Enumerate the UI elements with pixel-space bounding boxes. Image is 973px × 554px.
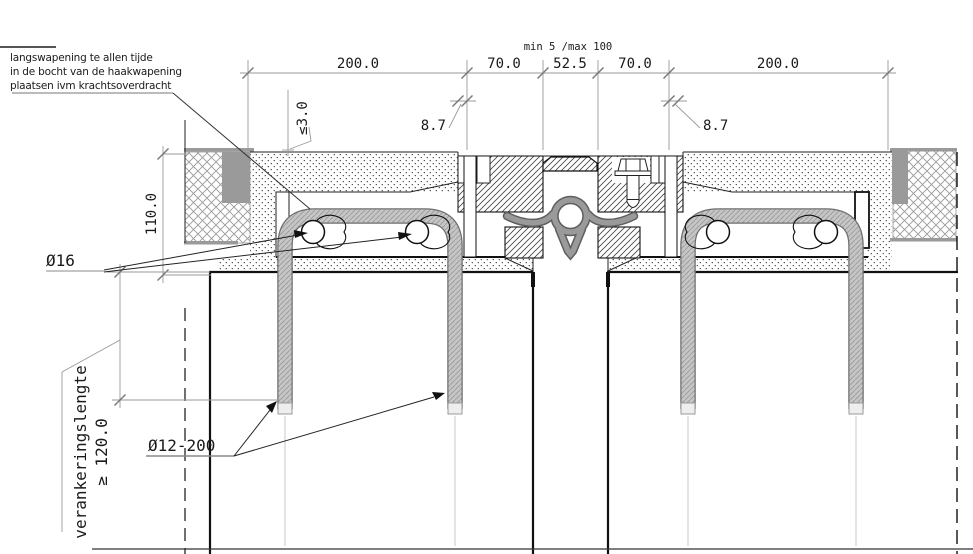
note-line-2: in de bocht van de haakwapening — [10, 66, 182, 78]
bar-o16-3 — [707, 221, 730, 244]
gap-range-label: min 5 /max 100 — [524, 41, 613, 53]
dim-8-7-right: 8.7 — [703, 118, 728, 134]
note-line-1: langswapening te allen tijde — [10, 52, 153, 64]
label-o12-200: Ø12-200 — [148, 436, 215, 455]
bar-o16-2 — [406, 221, 429, 244]
dim-110: 110.0 — [144, 193, 160, 235]
hook-rebar-right — [681, 216, 863, 414]
dim-200-right: 200.0 — [757, 56, 799, 72]
anchor-plate-left — [464, 156, 476, 257]
dim-52-5: 52.5 — [553, 56, 587, 72]
dim-70-left: 70.0 — [487, 56, 521, 72]
bar-o16-4 — [815, 221, 838, 244]
lower-block-left — [209, 255, 533, 554]
hook-rebar-left — [278, 216, 462, 414]
anchorage-label: verankeringslengte — [71, 365, 90, 538]
existing-concrete-crosshatch-right — [890, 148, 957, 242]
joint-cap-plate — [543, 157, 597, 171]
joint-filler-left — [222, 152, 250, 203]
existing-concrete-crosshatch-left — [184, 148, 254, 245]
bar-o16-1 — [302, 221, 325, 244]
joint-filler-right — [892, 151, 908, 204]
dim-70-right: 70.0 — [618, 56, 652, 72]
anchorage-value: ≥ 120.0 — [92, 418, 111, 485]
steel-lip-left — [505, 227, 543, 258]
edge-offset-left-dim — [449, 96, 476, 129]
label-o16: Ø16 — [46, 251, 75, 270]
note-line-3: plaatsen ivm krachtsoverdracht — [10, 80, 171, 92]
expansion-joint-drawing: langswapening te allen tijde in de bocht… — [0, 0, 973, 554]
rebar-centerlines — [285, 416, 856, 546]
expansion-joint-drawing-sheet: langswapening te allen tijde in de bocht… — [0, 0, 973, 554]
dim-200-left: 200.0 — [337, 56, 379, 72]
steel-edge-profile-left — [458, 156, 543, 258]
anchor-plate-right — [665, 156, 677, 257]
edge-offset-right-dim — [661, 96, 700, 129]
dim-8-7-left: 8.7 — [421, 118, 446, 134]
dim-le-3-0: ≤3.0 — [295, 101, 311, 135]
anchorage-dim — [62, 264, 280, 532]
dimension-system — [62, 60, 896, 532]
steel-lip-right — [598, 227, 640, 258]
